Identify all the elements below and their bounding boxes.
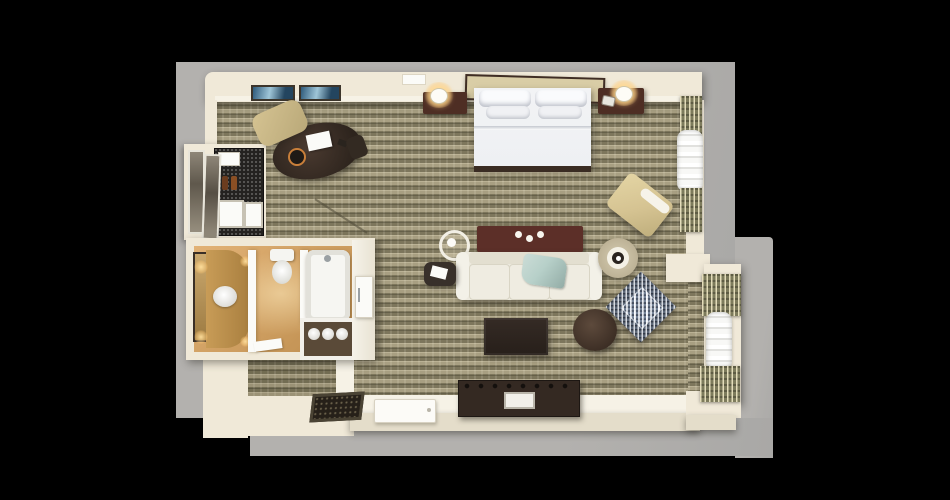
floor-lamp-bulb xyxy=(616,256,621,261)
sink xyxy=(213,286,237,307)
toilet-bowl xyxy=(272,260,292,284)
pillow-4 xyxy=(538,106,582,119)
closet-drawer-2 xyxy=(244,202,263,228)
bathroom-door-handle xyxy=(358,288,360,302)
floorplan-image xyxy=(0,0,950,500)
tub-faucet xyxy=(324,255,331,262)
rolled-towel-3 xyxy=(336,328,348,340)
round-ottoman xyxy=(573,309,617,351)
bath-divider-1 xyxy=(248,250,256,352)
table-lamp-left xyxy=(430,88,448,104)
entry-mat xyxy=(309,392,364,423)
upper-sheer-curtain xyxy=(677,130,703,192)
bay-drape-top xyxy=(702,274,741,316)
candle-3 xyxy=(537,231,544,238)
entry-door-handle xyxy=(427,408,431,412)
pillow-1 xyxy=(479,90,531,107)
pillow-3 xyxy=(486,106,530,119)
wall-art-1 xyxy=(251,85,295,101)
desk-lamp xyxy=(288,148,306,166)
candle-2 xyxy=(526,235,533,242)
upper-drape-top xyxy=(680,96,702,134)
pillow-2 xyxy=(535,90,587,107)
closet-drawer-1 xyxy=(218,200,244,228)
minibar-bottle-1 xyxy=(222,176,228,190)
wall-bottom-right-outer xyxy=(686,415,736,430)
bay-sheer-curtain xyxy=(706,312,732,370)
bathroom-shadow xyxy=(375,240,384,360)
tray-plate xyxy=(447,238,456,247)
rolled-towel-1 xyxy=(308,328,320,340)
sofa-arm-left xyxy=(456,252,469,300)
minibar-bottle-2 xyxy=(231,176,237,190)
sofa-cushion-1 xyxy=(469,264,510,300)
tv-console-knobs xyxy=(464,383,572,389)
bed-frame-edge xyxy=(474,166,591,172)
bay-drape-bottom xyxy=(700,366,740,402)
sheet-fold xyxy=(474,126,591,130)
mirror-door-2 xyxy=(202,154,222,241)
candle-1 xyxy=(515,231,522,238)
wall-art-2 xyxy=(299,85,341,101)
rolled-towel-2 xyxy=(322,328,334,340)
entry-carpet xyxy=(246,356,338,397)
wall-entry-column xyxy=(203,350,248,438)
wall-vent xyxy=(402,74,426,85)
vanity-light-1 xyxy=(194,260,208,274)
table-lamp-right xyxy=(615,86,633,102)
coffee-table xyxy=(484,318,548,355)
upper-drape-bottom xyxy=(680,188,702,232)
tv-remote xyxy=(504,392,535,409)
vanity-light-2 xyxy=(194,330,208,344)
